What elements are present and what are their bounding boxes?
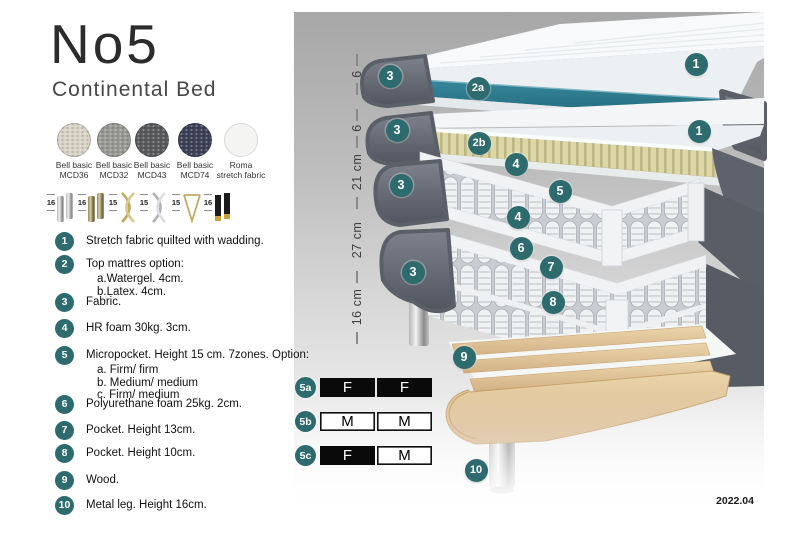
callout-badge-2a: 2a bbox=[467, 77, 490, 100]
fabric-swatch bbox=[97, 123, 131, 157]
callout-badge-9: 9 bbox=[453, 346, 476, 369]
legend-text: HR foam 30kg. 3cm. bbox=[86, 320, 191, 336]
measure-dash bbox=[47, 194, 55, 195]
version-label: 2022.04 bbox=[716, 495, 754, 507]
measure-dash bbox=[109, 194, 117, 195]
dimension-label: 6 bbox=[350, 124, 364, 131]
dimension-tick bbox=[356, 136, 358, 148]
chrome-cylinder-leg-icon bbox=[56, 190, 76, 224]
measure-dash bbox=[172, 194, 180, 195]
legend-text: Fabric. bbox=[86, 294, 121, 310]
dimension-tick bbox=[356, 197, 358, 209]
legend-text: Micropocket. Height 15 cm. 7zones. Optio… bbox=[86, 347, 309, 363]
fabric-swatch-label: Romastretch fabric bbox=[213, 160, 269, 181]
legend-number-badge: 1 bbox=[55, 232, 74, 251]
firmness-cell: M bbox=[377, 412, 432, 431]
callout-badge-10: 10 bbox=[465, 459, 488, 482]
dimension-tick bbox=[356, 54, 358, 66]
product-sheet: No5 Continental Bed Bell basicMCD36 Bell… bbox=[0, 0, 800, 533]
hairpin-leg-icon bbox=[181, 190, 203, 224]
legend-number-badge: 2 bbox=[55, 255, 74, 274]
fabric-swatch bbox=[135, 123, 169, 157]
leg-option-hairpin: 15 bbox=[171, 189, 201, 233]
dimension-label: 21 cm bbox=[350, 154, 364, 191]
gold-twisted-leg-icon bbox=[118, 190, 138, 224]
legend-number-badge: 4 bbox=[55, 319, 74, 338]
firmness-cell: F bbox=[320, 378, 375, 397]
dimension-label: 27 cm bbox=[350, 222, 364, 259]
measure-dash bbox=[140, 194, 148, 195]
legend-text: Wood. bbox=[86, 472, 119, 488]
firmness-cell: F bbox=[377, 378, 432, 397]
legend-number-badge: 3 bbox=[55, 293, 74, 312]
firmness-row-5a: 5a F F bbox=[295, 377, 432, 398]
measure-dash bbox=[109, 210, 117, 211]
dimension-tick bbox=[356, 83, 358, 95]
legend-number-badge: 5 bbox=[55, 346, 74, 365]
firmness-cell: F bbox=[320, 446, 375, 465]
measure-dash bbox=[78, 194, 86, 195]
callout-badge-3: 3 bbox=[402, 261, 425, 284]
measure-dash bbox=[47, 210, 55, 211]
dimension-label: 16 cm bbox=[350, 289, 364, 326]
leg-option-brass: 16 bbox=[77, 189, 107, 233]
firmness-cells: M M bbox=[320, 412, 432, 431]
legend-subtext: a.Watergel. 4cm. bbox=[97, 273, 184, 285]
callout-badge-5: 5 bbox=[549, 180, 572, 203]
dimension-tick bbox=[356, 332, 358, 344]
leg-height-measure: 15 bbox=[171, 192, 181, 213]
firmness-badge: 5a bbox=[295, 377, 316, 398]
leg-height-measure: 16 bbox=[77, 192, 87, 213]
black-gold-tip-leg-icon bbox=[213, 190, 233, 224]
dimension-tick bbox=[356, 109, 358, 121]
firmness-cell: M bbox=[377, 446, 432, 465]
page-title: No5 bbox=[50, 12, 160, 76]
callout-badge-7: 7 bbox=[540, 256, 563, 279]
legend-text: Pocket. Height 10cm. bbox=[86, 445, 195, 461]
dimension-label: 6 bbox=[350, 70, 364, 77]
dimension-tick bbox=[356, 271, 358, 283]
firmness-cell: M bbox=[320, 412, 375, 431]
leg-option-silver-twist: 15 bbox=[139, 189, 169, 233]
leg-option-black-gold: 16 bbox=[203, 189, 233, 233]
silver-twisted-leg-icon bbox=[149, 190, 169, 224]
callout-badge-4: 4 bbox=[505, 153, 528, 176]
callout-badge-2b: 2b bbox=[468, 132, 491, 155]
firmness-badge: 5c bbox=[295, 445, 316, 466]
legend-number-badge: 6 bbox=[55, 395, 74, 414]
leg-option-gold-twist: 15 bbox=[108, 189, 138, 233]
legend-number-badge: 10 bbox=[55, 496, 74, 515]
callout-badge-1: 1 bbox=[685, 53, 708, 76]
legend-text: Top mattres option: bbox=[86, 256, 184, 272]
callout-badge-6: 6 bbox=[510, 237, 533, 260]
fabric-swatch bbox=[178, 123, 212, 157]
measure-dash bbox=[140, 210, 148, 211]
firmness-row-5b: 5b M M bbox=[295, 411, 432, 432]
firmness-cells: F M bbox=[320, 446, 432, 465]
firmness-cells: F F bbox=[320, 378, 432, 397]
callout-badge-3: 3 bbox=[390, 174, 413, 197]
leg-height-measure: 16 bbox=[46, 192, 56, 213]
legend-text: Pocket. Height 13cm. bbox=[86, 422, 195, 438]
legend-number-badge: 7 bbox=[55, 421, 74, 440]
fabric-swatch bbox=[57, 123, 91, 157]
measure-dash bbox=[172, 210, 180, 211]
legend-number-badge: 9 bbox=[55, 471, 74, 490]
fabric-swatch bbox=[224, 123, 258, 157]
callout-badge-3: 3 bbox=[386, 119, 409, 142]
legend-subtext: b. Medium/ medium bbox=[97, 377, 198, 389]
legend-text: Stretch fabric quilted with wadding. bbox=[86, 233, 264, 249]
leg-height-measure: 15 bbox=[139, 192, 149, 213]
legend-text: Polyurethane foam 25kg. 2cm. bbox=[86, 396, 242, 412]
callout-badge-3: 3 bbox=[379, 65, 402, 88]
page-subtitle: Continental Bed bbox=[52, 78, 216, 102]
callout-badge-4: 4 bbox=[507, 206, 530, 229]
legend-subtext: a. Firm/ firm bbox=[97, 364, 158, 376]
leg-option-chrome: 16 bbox=[46, 189, 76, 233]
measure-dash bbox=[78, 210, 86, 211]
legend-number-badge: 8 bbox=[55, 444, 74, 463]
leg-height-measure: 16 bbox=[203, 192, 213, 213]
leg-height-measure: 15 bbox=[108, 192, 118, 213]
callout-badge-8: 8 bbox=[542, 291, 565, 314]
measure-dash bbox=[204, 210, 212, 211]
measure-dash bbox=[204, 194, 212, 195]
firmness-badge: 5b bbox=[295, 411, 316, 432]
callout-badge-1: 1 bbox=[688, 120, 711, 143]
firmness-row-5c: 5c F M bbox=[295, 445, 432, 466]
brass-cylinder-leg-icon bbox=[87, 190, 107, 224]
legend-text: Metal leg. Height 16cm. bbox=[86, 497, 207, 513]
